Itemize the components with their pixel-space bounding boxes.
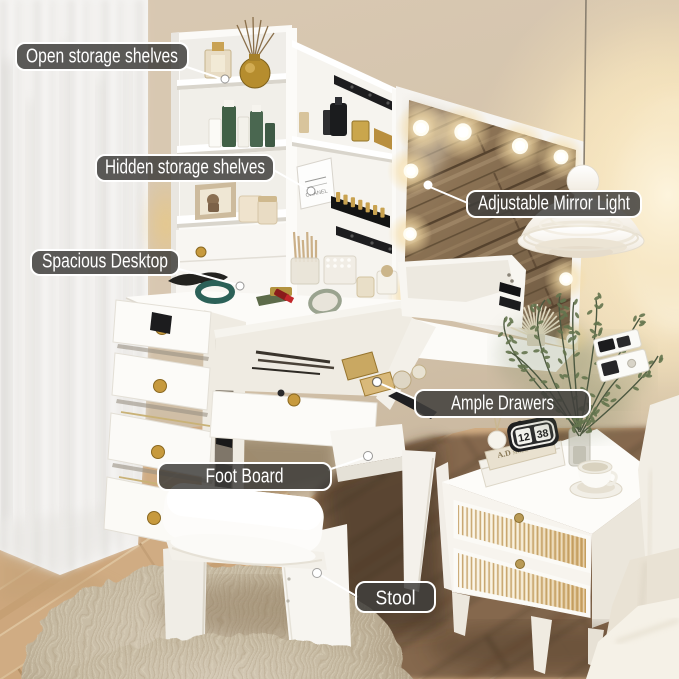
svg-text:12: 12 (517, 431, 531, 445)
svg-text:Hidden storage shelves: Hidden storage shelves (105, 157, 265, 179)
svg-text:Stool: Stool (376, 588, 416, 610)
svg-text:Ample Drawers: Ample Drawers (451, 393, 554, 415)
svg-text:Adjustable Mirror Light: Adjustable Mirror Light (478, 193, 630, 215)
svg-text:Spacious Desktop: Spacious Desktop (42, 251, 168, 273)
svg-text:Open storage shelves: Open storage shelves (26, 46, 178, 68)
svg-text:Foot Board: Foot Board (206, 466, 284, 488)
